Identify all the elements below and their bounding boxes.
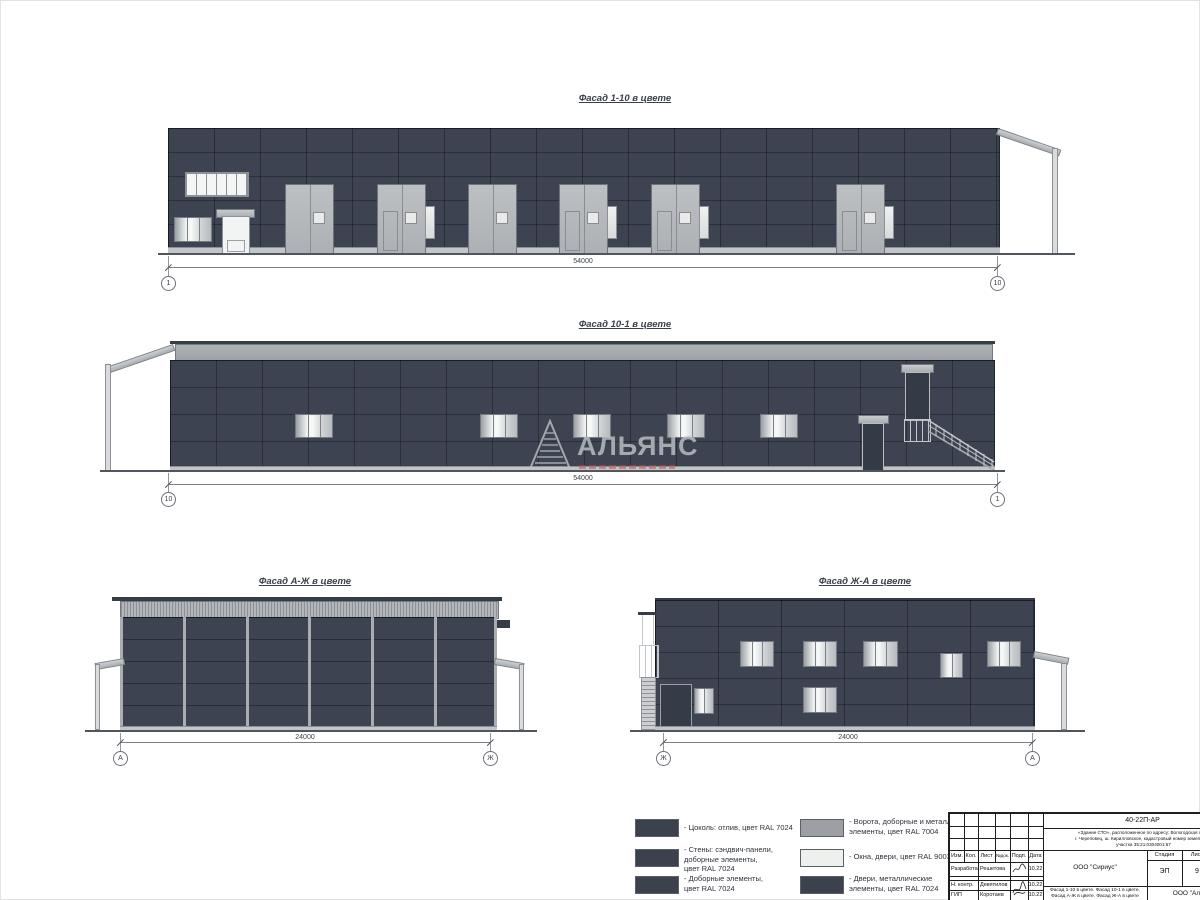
dimension-line bbox=[168, 267, 998, 268]
sheet-number: 9 bbox=[1182, 868, 1200, 875]
signer-role: ГИП bbox=[950, 892, 979, 898]
title-block-line bbox=[1043, 828, 1200, 829]
signer-name: Девятилов bbox=[979, 882, 1011, 888]
window bbox=[740, 641, 774, 667]
axis-marker: А bbox=[1025, 751, 1040, 766]
axis-marker: Ж bbox=[656, 751, 671, 766]
mullion bbox=[308, 617, 311, 728]
title-block-line bbox=[1147, 860, 1200, 861]
stair-rail bbox=[653, 615, 654, 646]
stair-flight bbox=[641, 677, 656, 732]
rev-header-cell: Лист bbox=[978, 853, 995, 859]
dimension-line bbox=[168, 484, 998, 485]
legend-swatch bbox=[635, 819, 679, 837]
legend-label: - Доборные элементы,цвет RAL 7024 bbox=[684, 874, 804, 893]
signer-date: 10.22 bbox=[1028, 866, 1043, 872]
dimension-text: 54000 bbox=[518, 475, 648, 482]
canopy-beam bbox=[109, 344, 176, 373]
signature bbox=[1011, 880, 1027, 898]
rev-header-cell: Изм. bbox=[950, 853, 964, 859]
window bbox=[803, 641, 837, 667]
mullion bbox=[246, 617, 249, 728]
window bbox=[174, 217, 212, 242]
window bbox=[863, 641, 898, 667]
title-block-line bbox=[1043, 886, 1200, 887]
title-block-line bbox=[950, 876, 1043, 877]
object-description: «Здание СТО», расположенное по адресу: В… bbox=[1045, 830, 1200, 848]
watermark-tagline bbox=[579, 465, 675, 469]
rev-header-cell: Кол. bbox=[964, 853, 978, 859]
ground-line bbox=[630, 730, 1085, 732]
alliance-logo-icon bbox=[528, 419, 572, 471]
window bbox=[480, 414, 518, 438]
roof-overhang bbox=[638, 612, 657, 615]
legend-swatch bbox=[800, 876, 844, 894]
signer-role: Н. контр. bbox=[950, 882, 979, 888]
canopy-column bbox=[1052, 148, 1058, 254]
gate-door bbox=[468, 184, 517, 254]
legend-swatch bbox=[635, 849, 679, 867]
title-block-line bbox=[950, 862, 1043, 863]
signer-date: 10.22 bbox=[1028, 892, 1043, 898]
corner-column bbox=[120, 617, 123, 729]
metal-door bbox=[862, 423, 884, 472]
legend-swatch bbox=[635, 876, 679, 894]
signer-name: Решетова bbox=[979, 866, 1011, 872]
axis-marker: 1 bbox=[990, 492, 1005, 507]
stair-rail bbox=[642, 615, 643, 646]
canopy-column bbox=[519, 664, 524, 730]
rev-header-cell: №док. bbox=[995, 853, 1010, 858]
dimension-line bbox=[663, 742, 1032, 743]
canopy-column bbox=[105, 364, 111, 472]
gate-door bbox=[285, 184, 334, 254]
signer-name: Коротаев bbox=[979, 892, 1011, 898]
legend-swatch bbox=[800, 849, 844, 867]
ground-line bbox=[100, 470, 1005, 472]
stage-value: ЭП bbox=[1147, 868, 1182, 875]
gate-door bbox=[377, 184, 426, 254]
drawing-sheet: Фасад 1-10 в цвете 54000 1 10 Фасад 10-1… bbox=[0, 0, 1200, 900]
ground-line bbox=[158, 253, 1075, 255]
window bbox=[940, 653, 963, 678]
metal-door bbox=[660, 684, 692, 732]
window bbox=[987, 641, 1021, 667]
dimension-text: 54000 bbox=[518, 258, 648, 265]
side-window bbox=[425, 206, 435, 239]
entrance-door bbox=[222, 216, 250, 255]
legend-swatch bbox=[800, 819, 844, 837]
window bbox=[694, 688, 714, 714]
mullion bbox=[371, 617, 374, 728]
stair-railing-grid bbox=[639, 645, 659, 678]
window bbox=[295, 414, 333, 438]
title-block: Изм. Кол. Лист №док. Подп. Дата Разработ… bbox=[948, 812, 1200, 900]
axis-marker: 1 bbox=[161, 276, 176, 291]
facade-title: Фасад 10-1 в цвете bbox=[545, 319, 705, 330]
signer-date: 10.22 bbox=[1028, 882, 1043, 888]
side-window bbox=[884, 206, 894, 239]
window bbox=[803, 687, 837, 713]
title-block-line bbox=[950, 890, 1043, 891]
title-block-line bbox=[1043, 850, 1200, 851]
side-window bbox=[699, 206, 709, 239]
axis-marker: А bbox=[113, 751, 128, 766]
dimension-line bbox=[120, 742, 491, 743]
document-number: 40-22П-АР bbox=[1043, 817, 1200, 824]
mullion bbox=[434, 617, 437, 728]
signature bbox=[1011, 863, 1027, 875]
legend-label: - Стены: сэндвич-панели,доборные элемент… bbox=[684, 845, 804, 874]
gate-door bbox=[651, 184, 700, 254]
facade-title: Фасад А-Ж в цвете bbox=[225, 576, 385, 587]
signer-role: Разработал bbox=[950, 866, 979, 872]
ribbon-window bbox=[185, 172, 249, 197]
dimension-text: 24000 bbox=[240, 734, 370, 741]
legend-label: - Цоколь: отлив, цвет RAL 7024 bbox=[684, 823, 804, 833]
side-window bbox=[607, 206, 617, 239]
watermark-text: АЛЬЯНС bbox=[577, 431, 699, 462]
design-org-name: ООО "Альянс" bbox=[1147, 890, 1200, 897]
canopy-column bbox=[1061, 663, 1067, 730]
gate-door bbox=[559, 184, 608, 254]
fire-escape-stair bbox=[926, 412, 1000, 472]
gate-door bbox=[836, 184, 885, 254]
sheet-title: Фасад 1-10 в цвете. Фасад 10-1 в цвете. … bbox=[1044, 888, 1146, 900]
facade-title: Фасад 1-10 в цвете bbox=[540, 93, 710, 104]
rev-header-cell: Подп. bbox=[1010, 853, 1028, 859]
canopy-column bbox=[95, 664, 100, 730]
axis-marker: 10 bbox=[990, 276, 1005, 291]
title-block-line bbox=[950, 880, 1043, 881]
facade-title: Фасад Ж-А в цвете bbox=[785, 576, 945, 587]
rev-header-cell: Дата bbox=[1028, 853, 1043, 859]
corner-column bbox=[494, 617, 497, 729]
mullion bbox=[183, 617, 186, 728]
wall-projection bbox=[497, 620, 510, 628]
axis-marker: 10 bbox=[161, 492, 176, 507]
dimension-text: 24000 bbox=[783, 734, 913, 741]
axis-marker: Ж bbox=[483, 751, 498, 766]
stage-label: Стадия bbox=[1147, 852, 1182, 858]
sheet-label: Лист bbox=[1182, 852, 1200, 858]
ground-line bbox=[85, 730, 537, 732]
window bbox=[760, 414, 798, 438]
client-name: ООО "Сириус" bbox=[1043, 864, 1147, 871]
